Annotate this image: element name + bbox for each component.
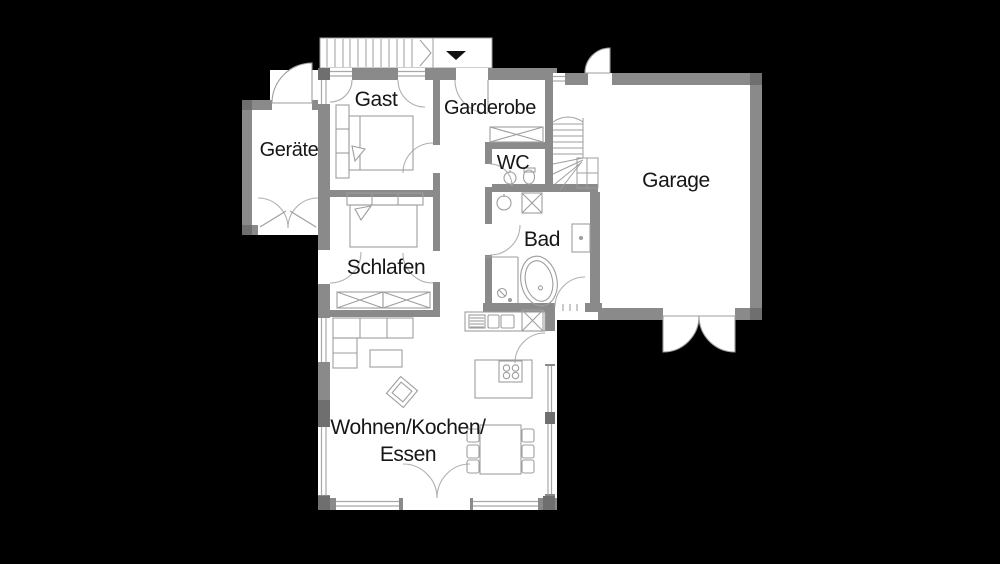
- label-garage: Garage: [642, 169, 710, 192]
- wall-geraete-left: [242, 100, 252, 235]
- label-garderobe: Garderobe: [444, 97, 536, 119]
- wall-bad-right: [590, 192, 600, 310]
- label-schlafen: Schlafen: [347, 256, 426, 279]
- floorplan-canvas: Gast Garderobe Geräte WC Garage Schlafen…: [0, 0, 1000, 564]
- wall-garage-right: [750, 73, 762, 320]
- floor-geraete: [242, 100, 330, 235]
- kitchen-side-door-opening: [545, 331, 555, 364]
- front-door-opening: [456, 68, 488, 80]
- wall-schlafen-bottom: [318, 310, 440, 317]
- wall-gast-garderobe: [433, 80, 440, 190]
- label-bad: Bad: [524, 228, 560, 251]
- label-wohnen-line2: Essen: [380, 443, 436, 466]
- label-wc: WC: [497, 152, 530, 174]
- terrace-door-opening: [403, 498, 470, 510]
- label-geraete: Geräte: [260, 139, 319, 161]
- wall-garage-top: [548, 73, 762, 85]
- label-gast: Gast: [355, 88, 398, 111]
- floorplan-svg: Gast Garderobe Geräte WC Garage Schlafen…: [0, 0, 1000, 564]
- schlafen-terrace-door-opening: [318, 250, 330, 284]
- floor-entry-strip: [320, 38, 492, 68]
- wall-right-upper: [545, 80, 553, 192]
- wall-top: [318, 68, 557, 80]
- back-door-opening: [588, 73, 612, 85]
- label-wohnen-line1: Wohnen/Kochen/: [330, 416, 486, 439]
- wall-garderobe-wc: [485, 142, 545, 149]
